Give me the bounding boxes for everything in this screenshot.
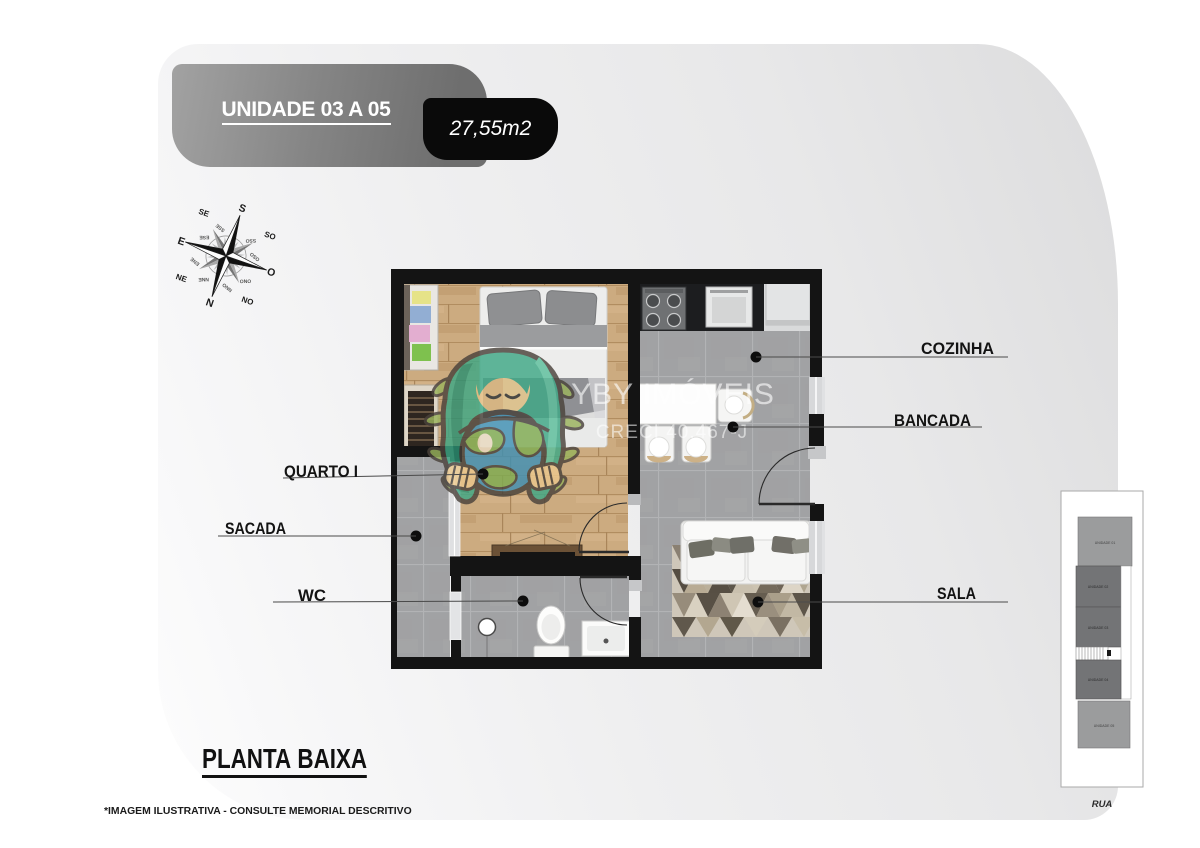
svg-text:WC: WC bbox=[298, 586, 326, 605]
svg-text:CRECI 40.467-J: CRECI 40.467-J bbox=[596, 422, 748, 443]
svg-text:SSO: SSO bbox=[245, 237, 256, 243]
svg-text:SACADA: SACADA bbox=[225, 519, 286, 538]
svg-text:COZINHA: COZINHA bbox=[921, 339, 994, 358]
svg-text:UNIDADE 01: UNIDADE 01 bbox=[1095, 541, 1116, 545]
svg-text:SO: SO bbox=[263, 230, 277, 242]
svg-text:UNIDADE 04: UNIDADE 04 bbox=[1088, 678, 1109, 682]
svg-text:UNIDADE 03: UNIDADE 03 bbox=[1088, 626, 1109, 630]
svg-text:SSE: SSE bbox=[214, 222, 226, 233]
svg-text:UNIDADE 02: UNIDADE 02 bbox=[1088, 585, 1109, 589]
svg-text:UNIDADE 05: UNIDADE 05 bbox=[1094, 724, 1115, 728]
svg-text:E: E bbox=[176, 235, 187, 249]
svg-text:SE: SE bbox=[197, 207, 211, 219]
svg-text:YBY IMÓVEIS: YBY IMÓVEIS bbox=[571, 378, 775, 411]
svg-text:SALA: SALA bbox=[937, 584, 976, 603]
svg-text:QUARTO I: QUARTO I bbox=[284, 462, 358, 481]
svg-text:BANCADA: BANCADA bbox=[894, 411, 971, 430]
svg-text:S: S bbox=[237, 202, 248, 216]
svg-text:ESE: ESE bbox=[199, 234, 210, 240]
svg-text:RUA: RUA bbox=[1092, 799, 1113, 810]
